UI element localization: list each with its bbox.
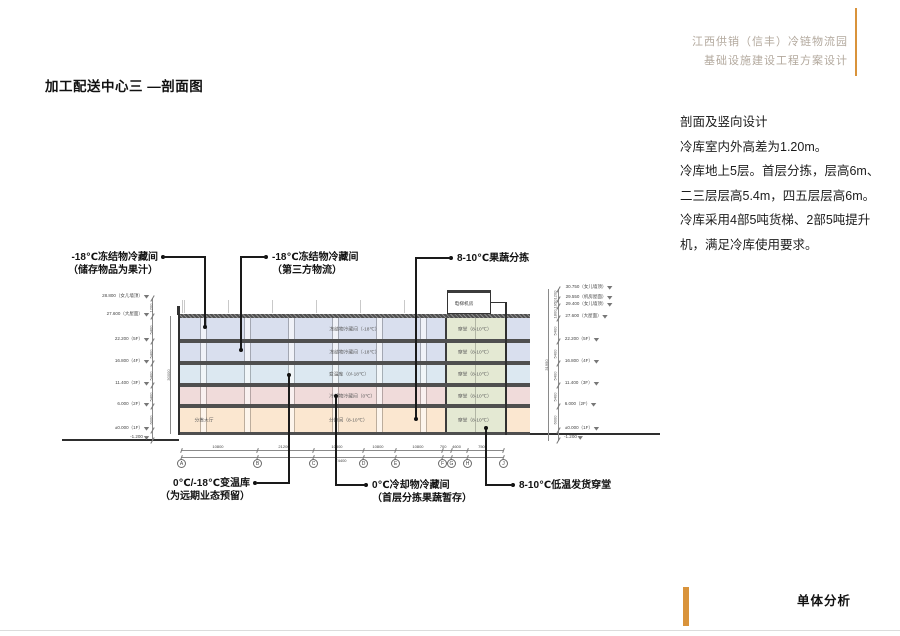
elevation-flag: -1.200	[564, 434, 583, 439]
columns	[180, 365, 443, 383]
dim-segment: 1200	[149, 304, 154, 313]
columns	[180, 318, 443, 339]
grid-bubble: D	[359, 459, 368, 468]
floor-5: 冻结物冷藏间（-18℃） 穿堂（8-10℃）	[178, 318, 530, 339]
dim-number: 700	[439, 445, 446, 450]
corridor-label: 穿堂（8-10℃）	[458, 417, 492, 424]
elevation-flag: ±0.000（1F）	[565, 424, 599, 430]
elevation-flag: 28.800（女儿墙顶）	[99, 292, 149, 298]
floor-1: 分拣大厅 分拣间（8-10℃） 穿堂（8-10℃）	[178, 408, 530, 432]
corridor-label: 穿堂（8-10℃）	[458, 325, 492, 332]
notes-line: 冷库地上5层。首层分拣，层高6m、	[680, 159, 885, 184]
floor-label: 冻结物冷藏间（-18℃）	[329, 349, 379, 356]
callout-dispatch-corridor: 8-10℃低温发货穿堂	[519, 479, 611, 492]
corridor-zone: 穿堂（8-10℃）	[445, 408, 505, 432]
project-subtitle: 基础设施建设工程方案设计	[692, 52, 848, 71]
notes-line: 冷库室内外高差为1.20m。	[680, 135, 885, 160]
header-accent-rule	[855, 8, 857, 76]
floor-label: 冻结物冷藏间（-18℃）	[329, 325, 379, 332]
dim-number: 10800	[212, 445, 223, 450]
columns	[180, 387, 443, 404]
dim-tick	[556, 437, 560, 444]
corridor-label: 穿堂（8-10℃）	[458, 349, 492, 356]
left-dim-total: 30000	[167, 369, 172, 380]
elevation-flag: 22.200（5F）	[565, 335, 599, 341]
penthouse-label: 电梯机房	[455, 300, 474, 307]
floor-2: 冷却物冷藏间（0℃） 穿堂（8-10℃）	[178, 387, 530, 404]
columns	[180, 408, 443, 432]
footer-section-label: 单体分析	[797, 590, 851, 609]
callout-freezer-3pl: -18℃冻结物冷藏间 （第三方物流）	[272, 251, 359, 277]
callout-variable-temp: 0℃/-18℃变温库 （为远期业态预留）	[130, 477, 250, 503]
notes-line: 机，满足冷库使用要求。	[680, 233, 885, 258]
elevation-flag: -1.200	[99, 434, 149, 439]
corridor-label: 穿堂（8-10℃）	[458, 392, 492, 399]
ground-line-right	[530, 433, 660, 435]
grid-bubble: E	[391, 459, 400, 468]
right-dim-total: 31950	[545, 359, 550, 370]
dim-segment: 5400	[149, 350, 154, 359]
floor-3: 变温库（0/-18℃） 穿堂（8-10℃）	[178, 365, 530, 383]
dim-segment: 6000	[149, 416, 154, 425]
dim-segment: 5400	[149, 326, 154, 335]
footer-divider	[0, 630, 900, 631]
dim-number: 4600	[452, 445, 461, 450]
project-header: 江西供销（信丰）冷链物流园 基础设施建设工程方案设计	[692, 33, 848, 71]
notes-heading: 剖面及竖向设计	[680, 110, 885, 135]
grid-bubble: J	[499, 459, 508, 468]
grid-bubble: A	[177, 459, 186, 468]
callout-fruit-sorting: 8-10℃果蔬分拣	[457, 252, 529, 265]
wall-right	[505, 302, 507, 435]
elevation-flag: 30.750（女儿墙顶）	[566, 283, 613, 289]
design-notes: 剖面及竖向设计 冷库室内外高差为1.20m。 冷库地上5层。首层分拣，层高6m、…	[680, 110, 885, 257]
dim-number: 10800	[372, 445, 383, 450]
floor-label: 变温库（0/-18℃）	[329, 371, 369, 378]
dim-tick	[502, 448, 505, 453]
dim-segment: 5400	[553, 393, 558, 402]
dim-segment: 5400	[553, 327, 558, 336]
bottom-dim-total: 74400	[335, 459, 346, 464]
floor-label-left: 分拣大厅	[195, 417, 214, 424]
notes-line: 冷库采用4部5吨货梯、2部5吨提升	[680, 208, 885, 233]
dim-segment: 1200	[553, 291, 558, 300]
grid-bubble: G	[447, 459, 456, 468]
dim-row1-line	[181, 450, 503, 451]
elevation-flag: 22.200（5F）	[99, 335, 149, 341]
elevation-flag: 29.400（女儿墙顶）	[566, 300, 613, 306]
callout-chilled-storage: 0℃冷却物冷藏间 （首层分拣果蔬暂存）	[372, 479, 472, 505]
elevation-flag: 27.600（大屋面）	[99, 310, 149, 316]
columns	[180, 343, 443, 361]
page-title: 加工配送中心三 —剖面图	[45, 75, 203, 95]
notes-line: 二三层层高5.4m，四五层层高6m。	[680, 184, 885, 209]
dim-segment: 5400	[149, 372, 154, 381]
corridor-label: 穿堂（8-10℃）	[458, 371, 492, 378]
elevation-flag: 16.800（4F）	[99, 357, 149, 363]
dim-number: 10800	[412, 445, 423, 450]
elevation-flag: 11.400（3F）	[565, 379, 599, 385]
grid-centerline-ticks	[178, 300, 444, 313]
footer-accent-bar	[683, 587, 689, 626]
dim-segment: 5400	[149, 393, 154, 402]
grid-bubble: C	[309, 459, 318, 468]
slide: 江西供销（信丰）冷链物流园 基础设施建设工程方案设计 加工配送中心三 —剖面图 …	[0, 0, 900, 636]
elevation-flag: 11.400（3F）	[99, 379, 149, 385]
grid-bubble: H	[463, 459, 472, 468]
corridor-zone: 穿堂（8-10℃）	[445, 387, 505, 404]
dim-segment: 1800	[553, 310, 558, 319]
wall-left	[178, 314, 180, 435]
elevator-machine-room: 电梯机房	[447, 290, 491, 314]
callout-freezer-juice: -18℃冻结物冷藏间 （储存物品为果汁）	[40, 251, 158, 277]
project-name: 江西供销（信丰）冷链物流园	[692, 33, 848, 52]
corridor-zone: 穿堂（8-10℃）	[445, 318, 505, 339]
elevation-flag: ±0.000（1F）	[99, 424, 149, 430]
dim-segment: 5400	[553, 350, 558, 359]
elevation-flag: 29.550（机房屋面）	[566, 293, 613, 299]
dim-segment: 5400	[553, 372, 558, 381]
elevation-flag: 6.000（2F）	[565, 400, 597, 406]
dim-segment: 1950	[553, 300, 558, 309]
corridor-zone: 穿堂（8-10℃）	[445, 343, 505, 361]
grid-bubble: B	[253, 459, 262, 468]
floor-4: 冻结物冷藏间（-18℃） 穿堂（8-10℃）	[178, 343, 530, 361]
elevation-flag: 27.600（大屋面）	[565, 312, 608, 318]
corridor-zone: 穿堂（8-10℃）	[445, 365, 505, 383]
grid-bubble: F	[438, 459, 447, 468]
dim-segment: 6000	[553, 416, 558, 425]
elevation-flag: 6.000（2F）	[99, 400, 149, 406]
elevation-flag: 16.800（4F）	[565, 357, 599, 363]
ground-slab	[178, 432, 530, 435]
